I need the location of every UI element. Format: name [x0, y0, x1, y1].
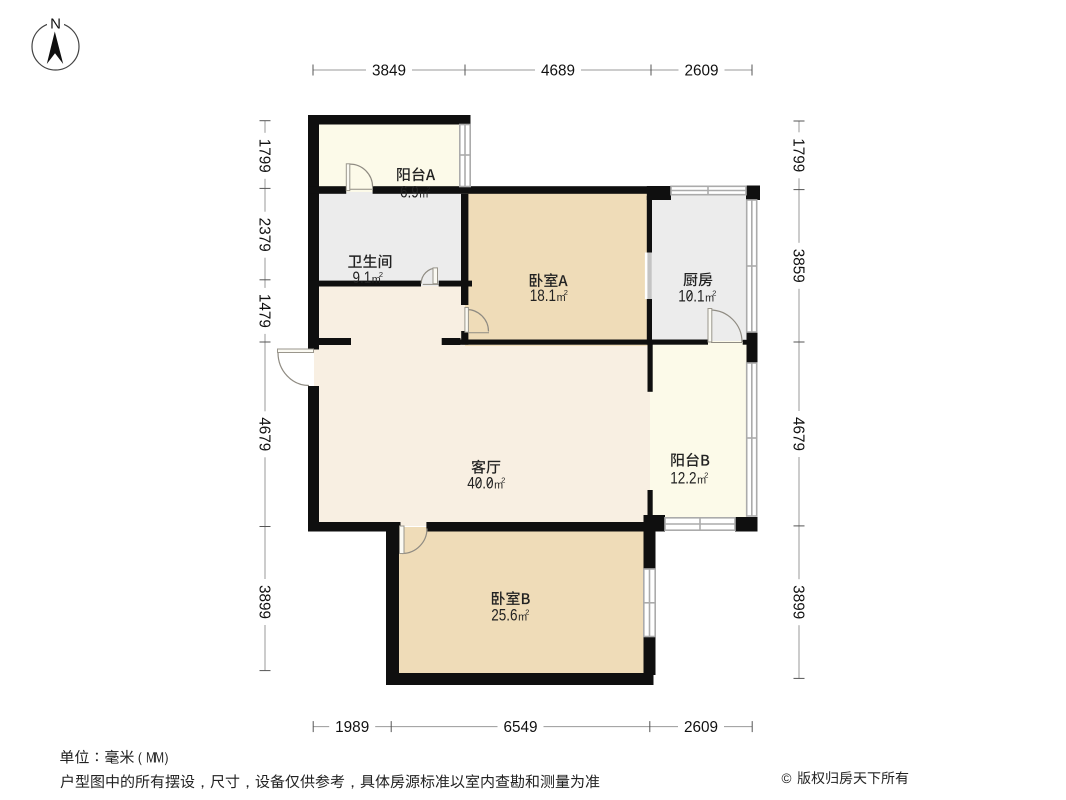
svg-text:3899: 3899 — [256, 585, 273, 619]
svg-text:4679: 4679 — [790, 417, 807, 451]
svg-text:1799: 1799 — [256, 139, 273, 173]
svg-text:10.1: 10.1 — [678, 288, 704, 306]
svg-text:3849: 3849 — [372, 62, 406, 79]
svg-text:1799: 1799 — [790, 138, 807, 172]
svg-text:2: 2 — [712, 289, 716, 298]
svg-text:2609: 2609 — [684, 719, 718, 736]
svg-text:2: 2 — [564, 288, 568, 297]
svg-text:18.1: 18.1 — [530, 287, 556, 305]
svg-text:6549: 6549 — [503, 719, 537, 736]
svg-text:©: © — [782, 771, 792, 786]
svg-text:1479: 1479 — [256, 294, 273, 328]
svg-text:4689: 4689 — [541, 62, 575, 79]
svg-text:25.6: 25.6 — [491, 607, 517, 625]
svg-text:2: 2 — [501, 476, 505, 485]
svg-text:6.9: 6.9 — [400, 184, 419, 202]
svg-text:1989: 1989 — [335, 719, 369, 736]
svg-text:3859: 3859 — [790, 249, 807, 283]
svg-text:3899: 3899 — [790, 585, 807, 619]
svg-text:12.2: 12.2 — [670, 470, 696, 488]
svg-text:2609: 2609 — [684, 62, 718, 79]
svg-text:2: 2 — [379, 270, 383, 279]
svg-text:2379: 2379 — [256, 218, 273, 252]
svg-text:2: 2 — [525, 608, 529, 617]
svg-text:N: N — [50, 16, 61, 33]
svg-text:2: 2 — [704, 471, 708, 480]
svg-text:2: 2 — [426, 185, 430, 194]
svg-text:4679: 4679 — [256, 417, 273, 451]
svg-text:9.1: 9.1 — [353, 269, 372, 287]
